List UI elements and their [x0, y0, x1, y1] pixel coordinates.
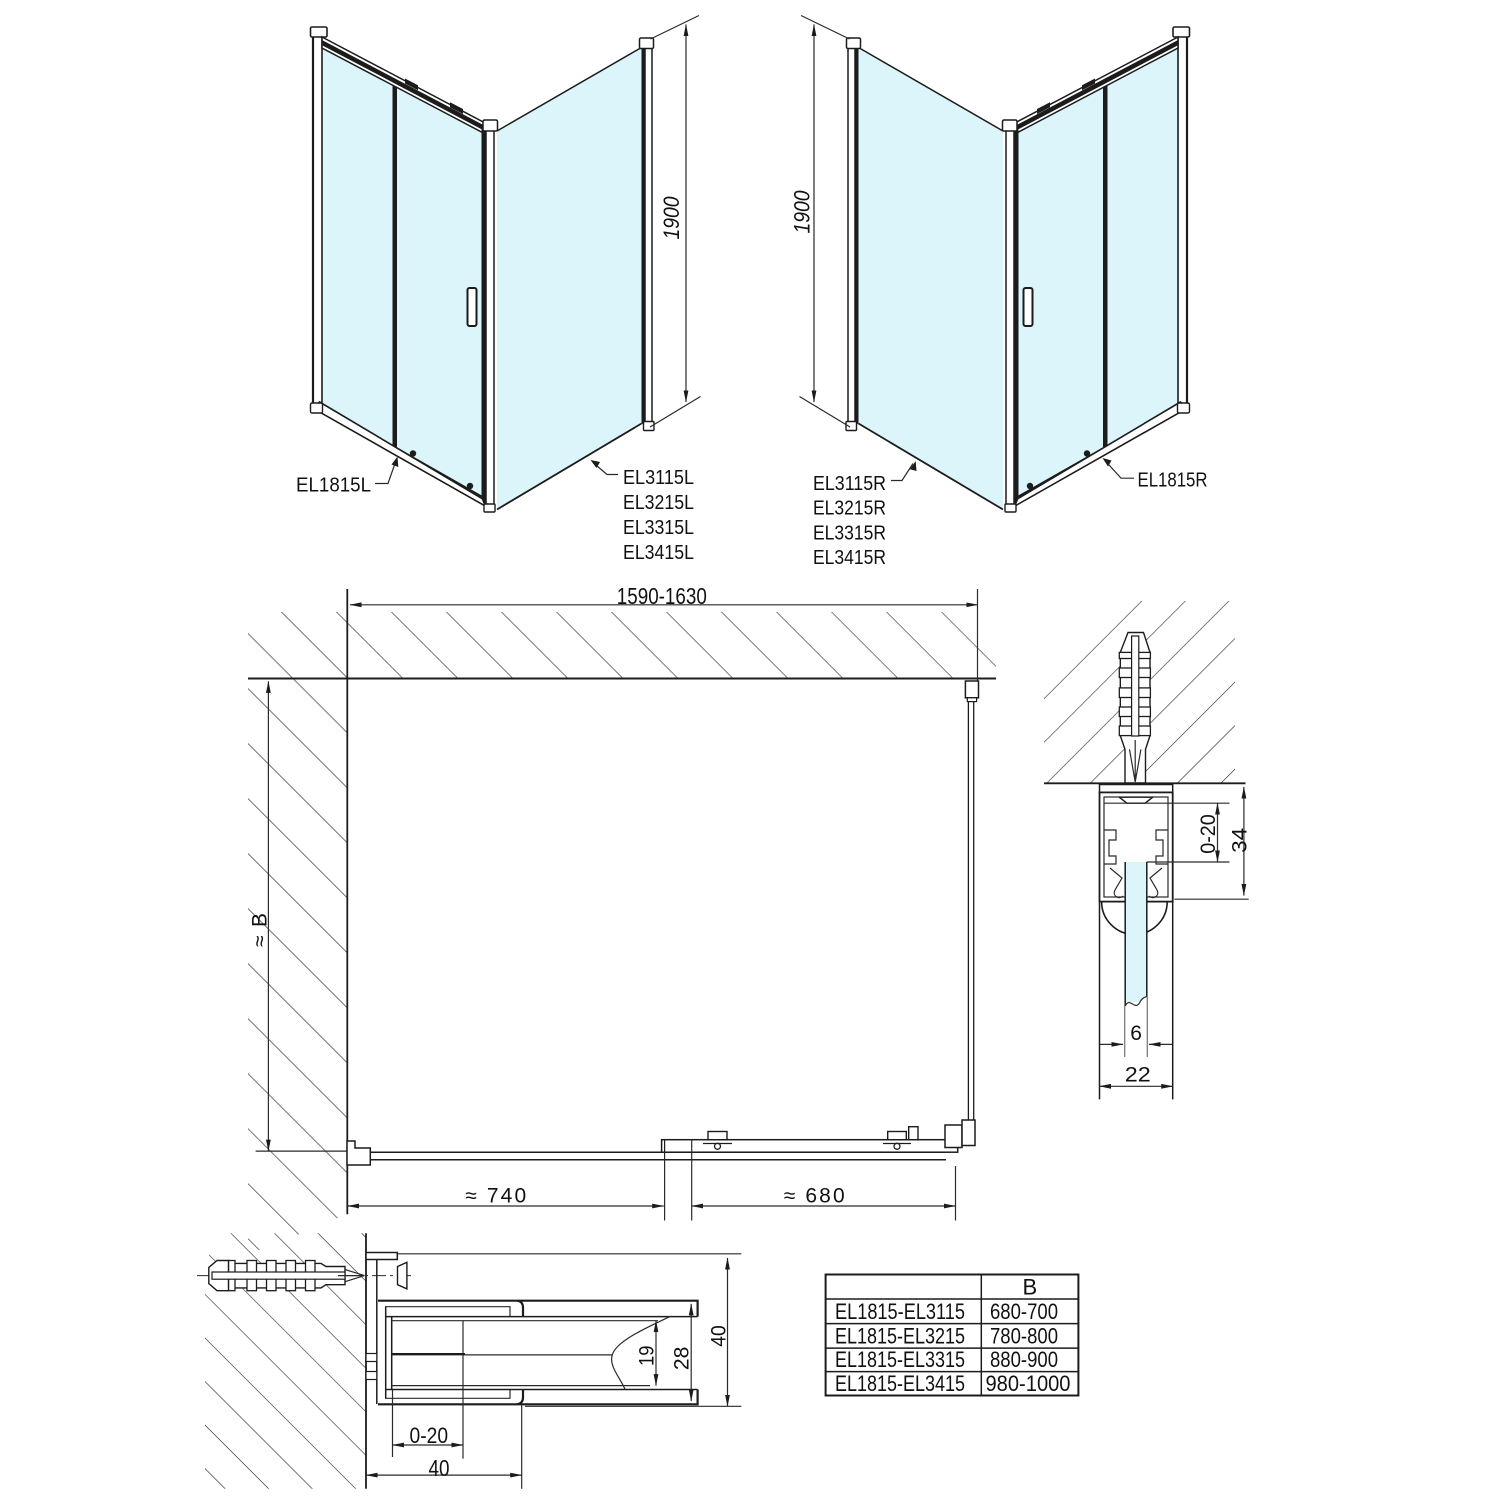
svg-text:40: 40: [708, 1325, 731, 1347]
svg-text:0-20: 0-20: [1197, 814, 1220, 854]
svg-text:≈ 680: ≈ 680: [784, 1185, 845, 1208]
svg-text:EL3115L: EL3115L: [623, 466, 694, 489]
svg-text:1590-1630: 1590-1630: [617, 583, 707, 609]
svg-text:B: B: [1023, 1275, 1038, 1300]
svg-text:EL3415L: EL3415L: [623, 541, 694, 564]
svg-text:34: 34: [1229, 828, 1252, 853]
svg-text:≈ 740: ≈ 740: [465, 1185, 526, 1208]
svg-text:EL3315R: EL3315R: [813, 521, 886, 544]
svg-text:≈ B: ≈ B: [249, 913, 272, 947]
svg-text:EL1815L: EL1815L: [296, 474, 371, 497]
svg-text:880-900: 880-900: [990, 1347, 1058, 1372]
svg-text:EL3315L: EL3315L: [623, 516, 694, 539]
svg-text:EL1815-EL3415: EL1815-EL3415: [835, 1371, 965, 1396]
svg-text:EL1815R: EL1815R: [1138, 469, 1208, 492]
svg-text:28: 28: [671, 1347, 694, 1371]
svg-text:EL1815-EL3215: EL1815-EL3215: [835, 1323, 965, 1348]
svg-text:0-20: 0-20: [410, 1423, 449, 1448]
svg-text:EL3415R: EL3415R: [813, 546, 886, 569]
svg-text:40: 40: [429, 1455, 450, 1481]
svg-text:EL1815-EL3315: EL1815-EL3315: [835, 1347, 965, 1372]
svg-text:6: 6: [1130, 1022, 1142, 1045]
svg-text:EL3215R: EL3215R: [813, 497, 886, 520]
svg-text:EL3115R: EL3115R: [813, 472, 886, 495]
svg-text:19: 19: [636, 1345, 659, 1366]
svg-text:1900: 1900: [659, 196, 684, 240]
svg-text:1900: 1900: [790, 190, 815, 234]
svg-text:EL1815-EL3115: EL1815-EL3115: [835, 1299, 965, 1324]
svg-text:980-1000: 980-1000: [986, 1371, 1071, 1396]
svg-text:780-800: 780-800: [990, 1323, 1058, 1348]
svg-text:EL3215L: EL3215L: [623, 491, 694, 514]
svg-text:22: 22: [1125, 1064, 1151, 1087]
svg-text:680-700: 680-700: [990, 1299, 1058, 1324]
